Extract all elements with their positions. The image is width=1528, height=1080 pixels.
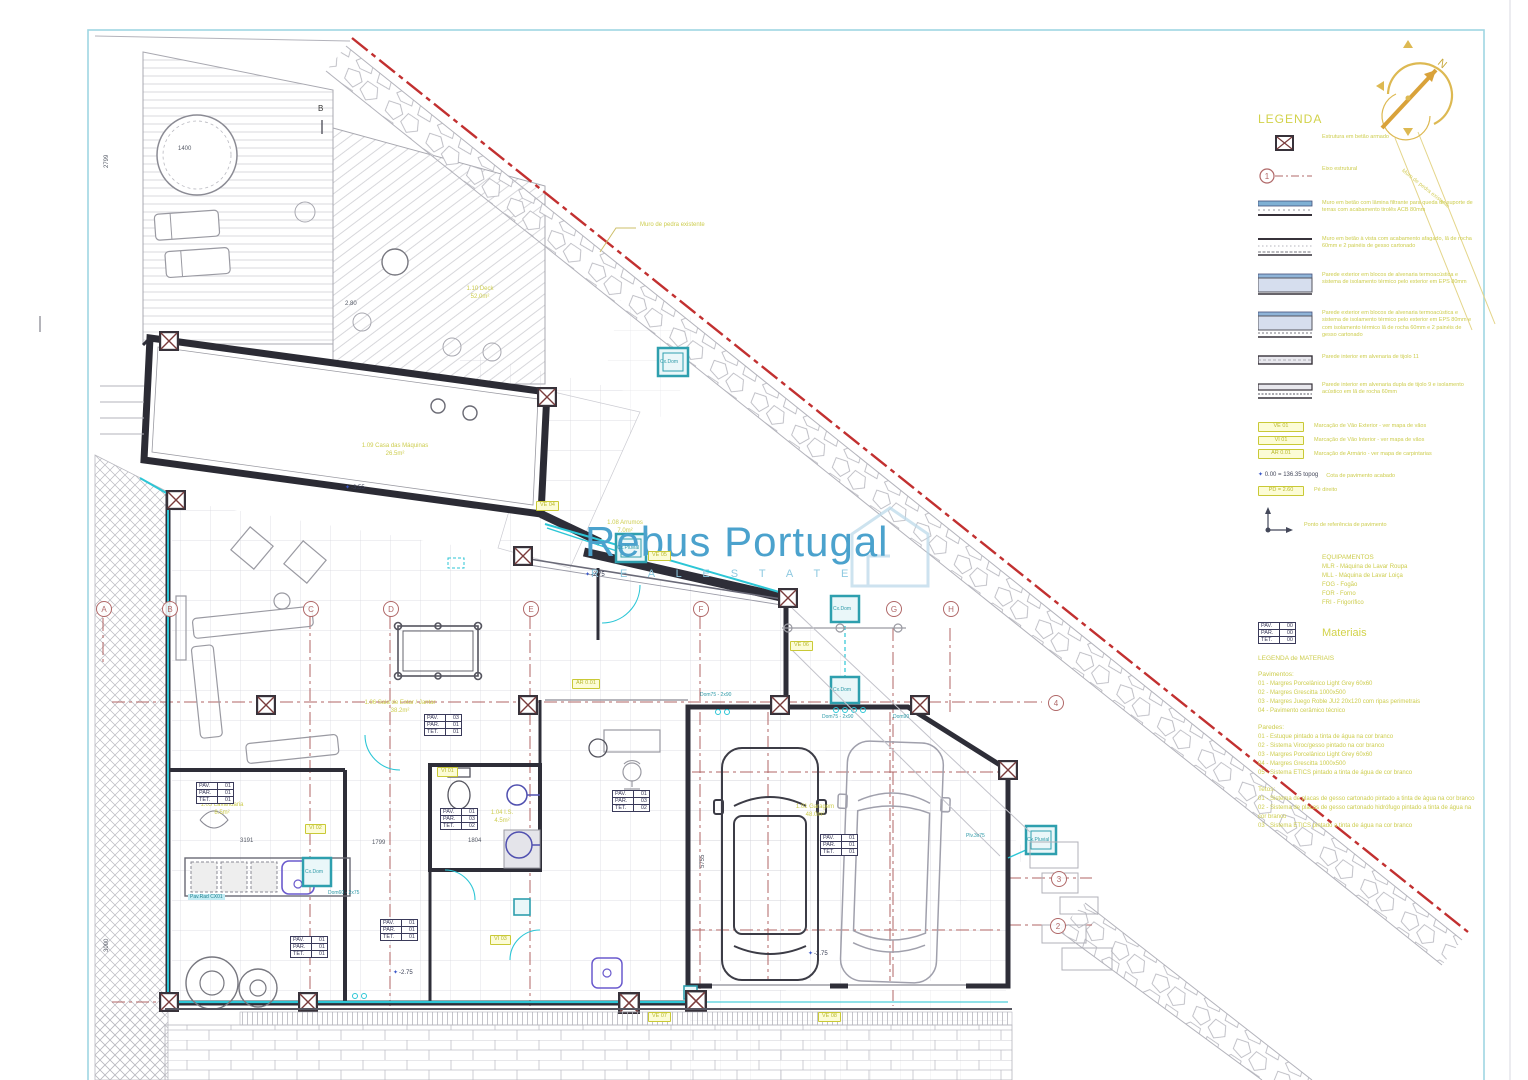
opening-tag: VE 06 — [790, 641, 813, 651]
elevation-marker: ✦-2.75 — [585, 571, 605, 578]
legend-pd: PD = 2.60 Pé direito — [1258, 486, 1476, 496]
axis-symbol-icon: 1 — [1258, 166, 1314, 191]
opening-tag: VE 08 — [818, 1012, 841, 1022]
wall-type-5-icon — [1258, 354, 1314, 373]
legend-item: 1 Eixo estrutural — [1258, 166, 1476, 191]
legend-item: Parede exterior em blocos de alvenaria t… — [1258, 310, 1476, 345]
utility-box-label: Cx.Dom — [833, 687, 851, 693]
finish-table: PAV.01 PAR.03 TET.02 — [612, 790, 650, 812]
utility-box-label: Cx.Pluvial — [1027, 837, 1049, 843]
dimension: 3000 — [104, 939, 110, 952]
legend-item: Parede interior em alvenaria dupla de ti… — [1258, 382, 1476, 407]
opening-tag: VI 01 — [437, 767, 458, 777]
brand-subtitle: R E A L E S T A T E — [591, 568, 889, 580]
legend-tag: VI 01 Marcação de Vão Interior - ver map… — [1258, 436, 1476, 446]
room-label: 1.06 Sala de Estar / Jantar38.2m² — [345, 700, 455, 715]
opening-tag: AR 0.01 — [572, 679, 600, 689]
utility-box-label: Cx.Dom — [305, 869, 323, 875]
pd-tag: PD = 2.60 — [1258, 486, 1304, 496]
svg-text:1: 1 — [1265, 172, 1270, 181]
utility-box-label: Cx.Dom — [660, 359, 678, 365]
elevation-marker: ✦-3.55 — [345, 484, 365, 491]
dimension: 2799 — [104, 155, 110, 168]
legend-tag: VE 01 Marcação de Vão Exterior - ver map… — [1258, 422, 1476, 432]
section-marker: B — [318, 104, 323, 113]
finish-table: PAV.01 PAR.01 TET.01 — [290, 936, 328, 958]
grid-axis-2: 2 — [1050, 918, 1066, 934]
materials-legend: LEGENDA de MATERIAIS Pavimentos: 01 - Ma… — [1258, 654, 1476, 831]
legend-title: LEGENDA — [1258, 112, 1476, 126]
finish-table: PAV.01 PAR.03 TET.02 — [440, 808, 478, 830]
room-label: 1.01 Garagem48.0m² — [760, 804, 870, 819]
retaining-wall — [165, 1009, 1012, 1080]
pipe-label: Dom90 — [893, 714, 909, 720]
ground-hatch — [95, 455, 168, 1080]
utility-box-label: Cx.Dom — [833, 606, 851, 612]
legend-axis-ref: Ponto de referência de pavimento — [1258, 506, 1476, 545]
radiant-floor-label: Pav.Rad CX01 — [188, 894, 225, 900]
vi-tag: VI 01 — [1258, 436, 1304, 446]
room-label: 1.10 Deck52.0m² — [425, 286, 535, 301]
dimension: 1400 — [178, 146, 191, 152]
equipment-list: EQUIPAMENTOS MLR - Máquina de Lavar Roup… — [1322, 553, 1476, 608]
elevation-marker: ✦-2.75 — [393, 969, 413, 976]
elevation-marker: ✦-2.75 — [808, 950, 828, 957]
materials-key: PAV.00 PAR.00 TET.00 Materiais — [1258, 622, 1476, 644]
wall-type-6-icon — [1258, 382, 1314, 407]
ve-tag: VE 01 — [1258, 422, 1304, 432]
grid-axis-e: E — [523, 601, 539, 617]
wall-type-1-icon — [1258, 200, 1314, 227]
grid-axis-h: H — [943, 601, 959, 617]
room-label: 1.05 Lavandaria8.5m² — [167, 802, 277, 817]
dimension: 5755 — [700, 855, 706, 868]
legend-level: ✦ 0.00 = 136.35 topog Cota de pavimento … — [1258, 471, 1476, 482]
legend-item: Muro em betão com lâmina filtrante para … — [1258, 200, 1476, 227]
opening-tag: VE 05 — [648, 551, 671, 561]
grid-axis-4: 4 — [1048, 695, 1064, 711]
legend-tag: AR 0.01 Marcação de Armário - ver mapa d… — [1258, 449, 1476, 459]
wall-type-3-icon — [1258, 272, 1314, 301]
opening-tag: VI 02 — [305, 824, 326, 834]
wall-type-4-icon — [1258, 310, 1314, 345]
finish-table: PAV.03 PAR.01 TET.01 — [424, 714, 462, 736]
grid-axis-f: F — [693, 601, 709, 617]
column-symbol-icon — [1258, 134, 1314, 157]
deck-area — [143, 52, 545, 384]
grid-axis-c: C — [303, 601, 319, 617]
dimension: 1804 — [468, 838, 481, 844]
dimension: 2.80 — [345, 301, 357, 307]
dimension: 3191 — [240, 838, 253, 844]
materials-table: PAV.00 PAR.00 TET.00 — [1258, 622, 1296, 644]
legend-item: Muro em betão à vista com acabamento afa… — [1258, 236, 1476, 263]
legend-item: Parede exterior em blocos de alvenaria t… — [1258, 272, 1476, 301]
opening-tag: VI 03 — [490, 935, 511, 945]
legend-item: Parede interior em alvenaria de tijolo 1… — [1258, 354, 1476, 373]
legend-panel: LEGENDA Estrutura em betão armado 1 Eixo… — [1258, 112, 1476, 831]
legend-item: Estrutura em betão armado — [1258, 134, 1476, 157]
pipe-label: Dom75 - 2x90 — [700, 692, 731, 698]
room-label: 1.09 Casa das Máquinas26.5m² — [340, 443, 450, 458]
dimension: 1799 — [372, 840, 385, 846]
opening-tag: VE 07 — [648, 1012, 671, 1022]
finish-table: PAV.01 PAR.01 TET.01 — [380, 919, 418, 941]
ar-tag: AR 0.01 — [1258, 449, 1304, 459]
wall-type-2-icon — [1258, 236, 1314, 263]
grid-axis-3: 3 — [1051, 871, 1067, 887]
axis-ref-icon — [1258, 506, 1296, 545]
pipe-label: Dom75 - 2x90 — [822, 714, 853, 720]
finish-table: PAV.01 PAR.01 TET.01 — [820, 834, 858, 856]
utility-box-label: Cx.Pluvial — [617, 545, 639, 551]
grid-axis-g: G — [886, 601, 902, 617]
grid-axis-a: A — [96, 601, 112, 617]
floor-plan-sheet: Rebus Portugal R E A L E S T A T E A B C… — [0, 0, 1528, 1080]
callout-note: Muro de pedra existente — [640, 222, 705, 229]
pipe-label: Plv.3x75 — [966, 833, 985, 839]
pipe-label: Dom60 - 2x75 — [328, 890, 359, 896]
grid-axis-d: D — [383, 601, 399, 617]
grid-axis-b: B — [162, 601, 178, 617]
finish-table: PAV.01 PAR.01 TET.01 — [196, 782, 234, 804]
room-label: 1.08 Arrumos7.0m² — [570, 520, 680, 535]
opening-tag: VE 04 — [536, 501, 559, 511]
